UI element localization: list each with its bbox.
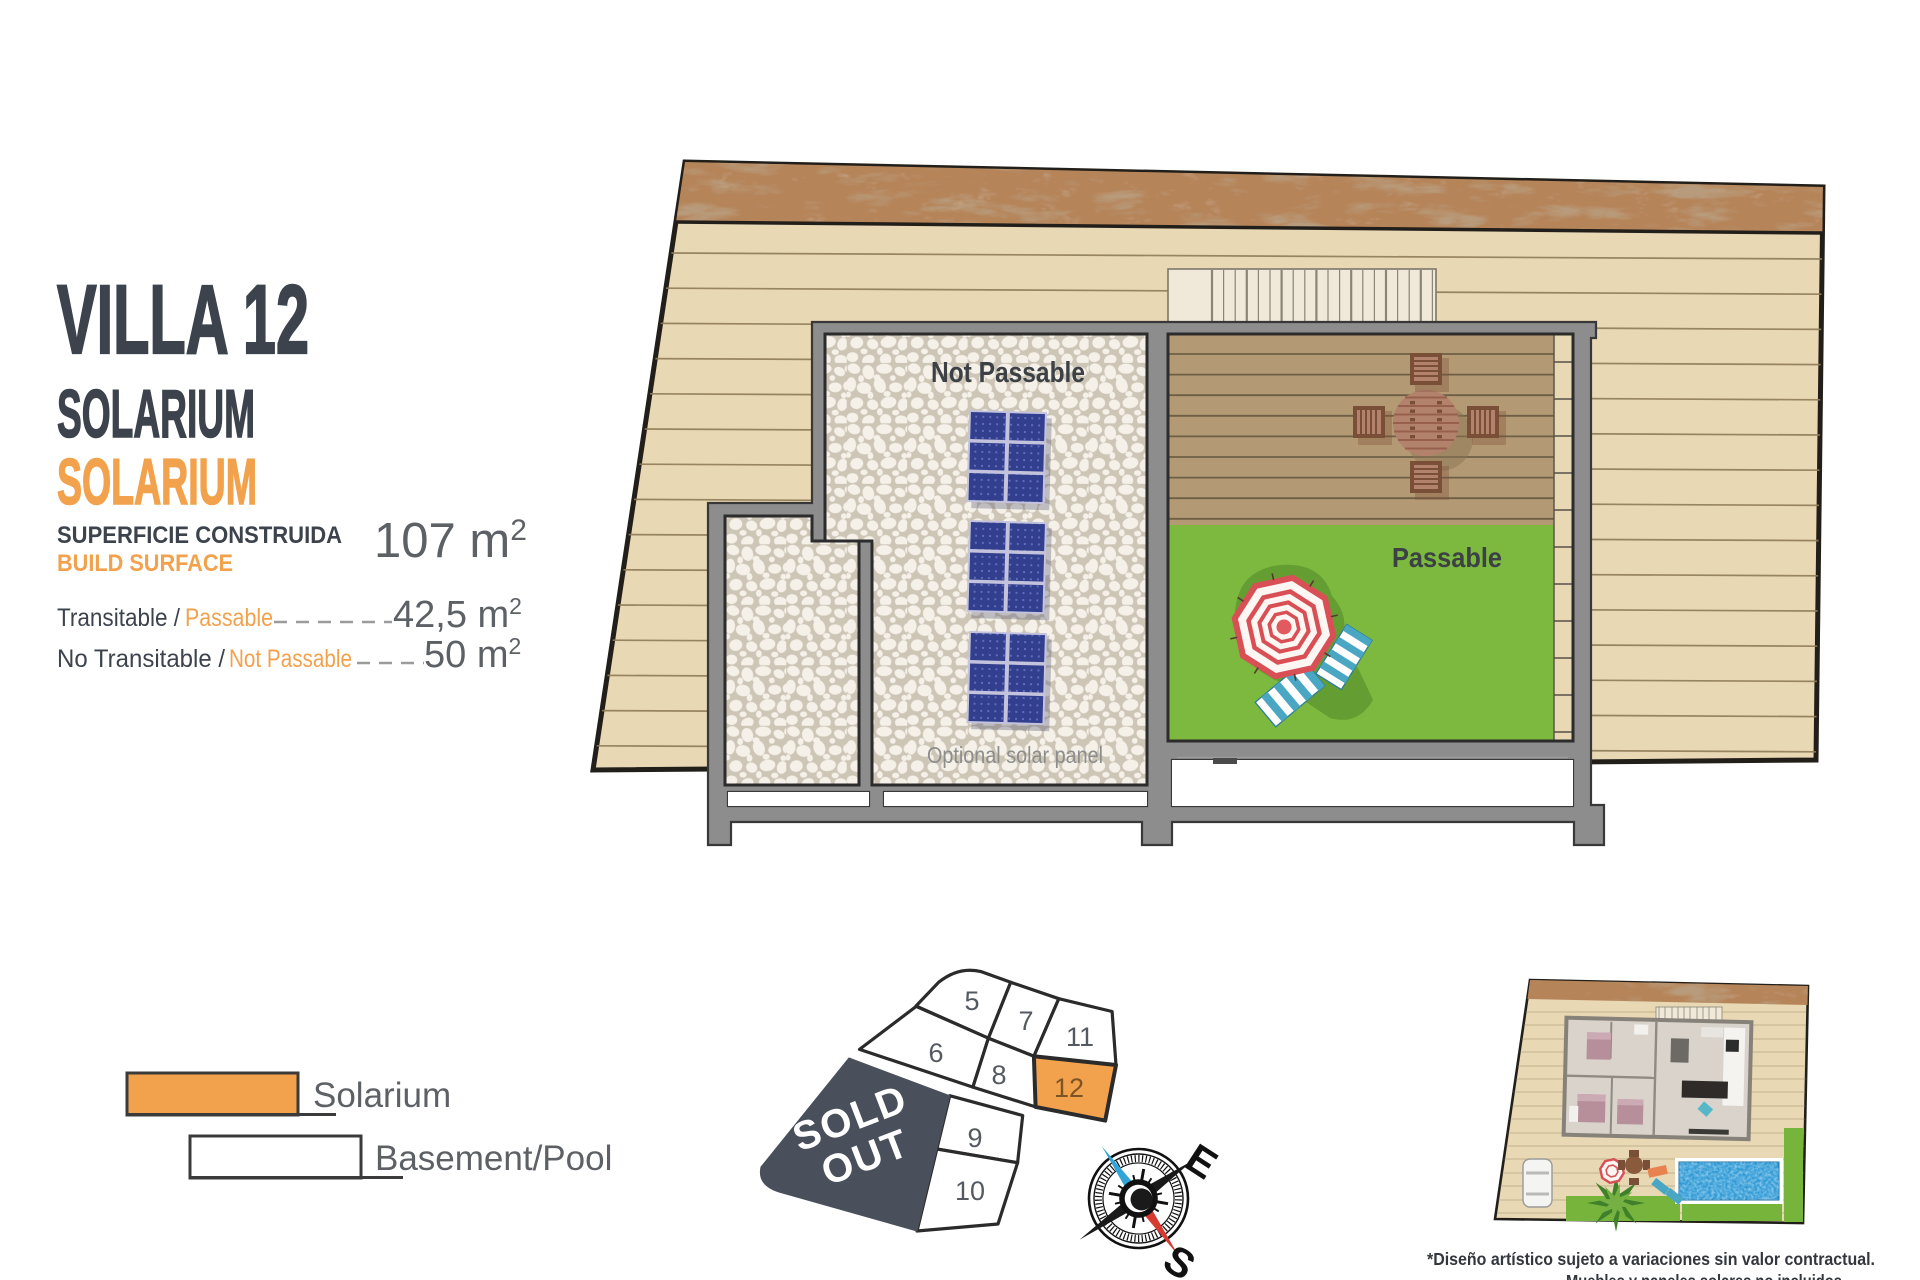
svg-text:VILLA 12: VILLA 12 [57,265,309,374]
svg-text:42,5 m2: 42,5 m2 [393,593,522,636]
svg-text:SOLARIUM: SOLARIUM [57,445,257,518]
svg-text:50 m2: 50 m2 [424,633,521,676]
svg-text:Optional solar panel: Optional solar panel [927,742,1103,768]
svg-text:12: 12 [1054,1073,1084,1103]
svg-text:9: 9 [967,1123,982,1153]
svg-text:7: 7 [1018,1006,1033,1036]
svg-text:Passable: Passable [185,604,273,632]
svg-text:11: 11 [1066,1022,1094,1052]
svg-text:*Diseño artístico sujeto a var: *Diseño artístico sujeto a variaciones s… [1427,1249,1875,1269]
svg-text:Basement/Pool: Basement/Pool [375,1139,612,1178]
svg-text:Muebles y paneles solares no i: Muebles y paneles solares no incluidos. [1566,1271,1846,1280]
svg-text:Not Passable: Not Passable [229,645,352,673]
svg-text:Solarium: Solarium [313,1076,451,1115]
svg-text:BUILD SURFACE: BUILD SURFACE [57,550,233,577]
svg-text:Not Passable: Not Passable [931,357,1085,389]
svg-text:8: 8 [991,1060,1006,1090]
svg-text:No Transitable /: No Transitable / [57,645,225,673]
svg-text:SOLARIUM: SOLARIUM [57,376,255,452]
svg-text:107 m2: 107 m2 [374,514,527,568]
svg-text:SUPERFICIE CONSTRUIDA: SUPERFICIE CONSTRUIDA [57,522,342,549]
svg-text:Passable: Passable [1392,542,1502,573]
svg-text:Transitable /: Transitable / [57,604,180,632]
svg-text:10: 10 [955,1176,985,1206]
svg-text:5: 5 [964,986,979,1016]
svg-text:6: 6 [928,1038,943,1068]
